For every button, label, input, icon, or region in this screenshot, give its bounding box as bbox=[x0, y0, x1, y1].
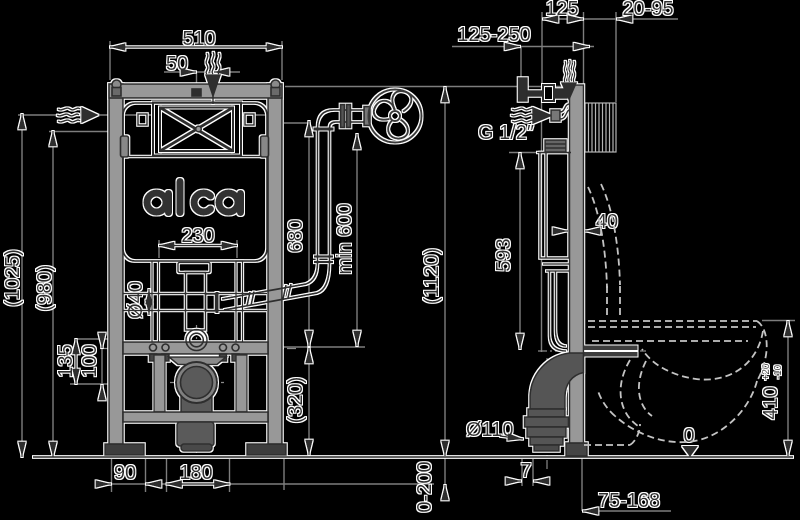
svg-text:G 1/2″: G 1/2″ bbox=[478, 122, 534, 144]
svg-text:230: 230 bbox=[181, 225, 214, 247]
svg-text:125: 125 bbox=[545, 0, 578, 20]
svg-text:680: 680 bbox=[285, 219, 307, 252]
svg-text:Ø40: Ø40 bbox=[125, 281, 147, 319]
svg-text:(1025): (1025) bbox=[2, 249, 24, 307]
svg-text:20-95: 20-95 bbox=[622, 0, 673, 20]
svg-text:7: 7 bbox=[520, 460, 531, 482]
svg-text:510: 510 bbox=[182, 28, 215, 50]
svg-text:50: 50 bbox=[166, 53, 188, 75]
svg-text:(1120): (1120) bbox=[421, 248, 443, 304]
svg-text:0-200: 0-200 bbox=[414, 461, 436, 512]
svg-text:90: 90 bbox=[114, 462, 136, 484]
svg-text:135: 135 bbox=[55, 344, 77, 377]
svg-text:Ø110: Ø110 bbox=[466, 419, 513, 441]
svg-text:(980): (980) bbox=[34, 265, 56, 312]
svg-text:180: 180 bbox=[179, 462, 212, 484]
svg-text:125-250: 125-250 bbox=[457, 24, 530, 46]
svg-text:min 600: min 600 bbox=[334, 203, 356, 274]
svg-text:410: 410 bbox=[760, 386, 782, 419]
svg-text:-10: -10 bbox=[773, 364, 784, 379]
svg-text:593: 593 bbox=[493, 238, 515, 271]
svg-text:0: 0 bbox=[683, 425, 694, 447]
svg-text:75-168: 75-168 bbox=[598, 490, 660, 512]
svg-text:100: 100 bbox=[79, 344, 101, 377]
svg-text:(320): (320) bbox=[285, 377, 307, 424]
